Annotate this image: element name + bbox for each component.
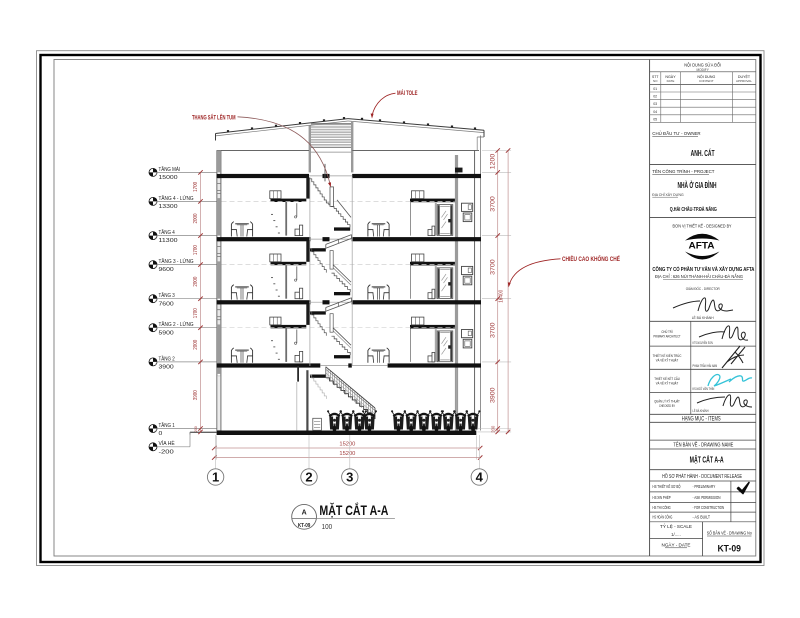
svg-text:TỶ LỆ - SCALE: TỶ LỆ - SCALE [660,522,692,529]
svg-text:TẦNG 3 - LỬNG: TẦNG 3 - LỬNG [159,258,194,265]
svg-text:TẦNG 3: TẦNG 3 [159,292,175,299]
svg-text:TẦNG 2: TẦNG 2 [159,355,175,362]
svg-text:9600: 9600 [159,267,174,273]
svg-text:2000: 2000 [193,213,199,223]
svg-text:ANH. CÁT: ANH. CÁT [691,148,715,158]
svg-text:200: 200 [491,425,496,433]
svg-text:- ASK PERMISSION: - ASK PERMISSION [693,495,721,500]
svg-text:15000: 15000 [159,175,178,181]
svg-text:3: 3 [346,470,353,485]
svg-text:NGÀY - DATE: NGÀY - DATE [662,541,691,547]
svg-text:7600: 7600 [159,301,174,307]
svg-text:4: 4 [476,470,484,485]
svg-text:Q.HẢI CHÂU-TP.ĐÀ NẴNG: Q.HẢI CHÂU-TP.ĐÀ NẴNG [670,206,717,213]
svg-text:0: 0 [159,431,163,437]
svg-text:11300: 11300 [159,238,178,244]
svg-text:VÀ VẼ KỸ THUẬT: VÀ VẼ KỸ THUẬT [656,358,679,363]
svg-text:1700: 1700 [193,182,199,192]
svg-text:15200: 15200 [339,451,355,457]
svg-text:TÊN CÔNG TRÌNH - PROJECT: TÊN CÔNG TRÌNH - PROJECT [652,169,714,174]
svg-text:NO: NO [653,79,658,83]
svg-text:- FOR CONSTRUCTION: - FOR CONSTRUCTION [693,505,725,510]
svg-text:3900: 3900 [193,390,199,400]
svg-text:SỐ BẢN VẼ - DRAWING No: SỐ BẢN VẼ - DRAWING No [707,531,752,536]
svg-text:2000: 2000 [193,340,199,350]
svg-text:CHỦ ĐẦU TƯ - OWNER: CHỦ ĐẦU TƯ - OWNER [652,131,700,136]
svg-text:TẦNG 1: TẦNG 1 [159,422,175,429]
svg-text:VÀ VẼ KỸ THUẬT: VÀ VẼ KỸ THUẬT [656,381,679,386]
svg-text:A: A [302,510,307,517]
svg-text:AFTA: AFTA [689,241,715,251]
svg-text:THIẾT KẾ KẾT CẤU: THIẾT KẾ KẾT CẤU [654,376,680,381]
svg-text:05: 05 [653,117,657,121]
svg-text:GIÁM ĐỐC - DIRECTOR: GIÁM ĐỐC - DIRECTOR [686,286,720,291]
svg-text:100: 100 [322,522,333,531]
svg-text:TẦNG 2 - LỬNG: TẦNG 2 - LỬNG [159,321,194,328]
svg-text:01: 01 [653,87,657,91]
svg-text:- PRELIMINARY: - PRELIMINARY [693,484,716,489]
svg-text:3700: 3700 [490,259,497,275]
svg-text:HS XIN PHÉP: HS XIN PHÉP [653,495,671,500]
svg-text:HS THIẾT KẾ SƠ BỘ: HS THIẾT KẾ SƠ BỘ [653,484,682,489]
svg-text:VỈA HÈ: VỈA HÈ [159,440,176,447]
svg-text:03: 03 [653,102,657,106]
svg-text:ĐƠN VỊ THIẾT KẾ - DESIGNED BY: ĐƠN VỊ THIẾT KẾ - DESIGNED BY [673,223,733,230]
svg-text:1700: 1700 [193,308,199,318]
svg-text:PHAN TRẦN HẢI NAM: PHAN TRẦN HẢI NAM [693,363,718,368]
svg-text:3900: 3900 [490,387,497,403]
svg-text:LÊ BÁ KHÁNH: LÊ BÁ KHÁNH [692,315,714,320]
svg-text:MODIFY: MODIFY [696,68,709,72]
svg-text:02: 02 [653,95,657,99]
svg-text:THIẾT KẾ KIẾN TRÚC: THIẾT KẾ KIẾN TRÚC [653,353,682,358]
svg-text:CÔNG TY CỔ PHẦN TƯ VẤN VÀ XÂY: CÔNG TY CỔ PHẦN TƯ VẤN VÀ XÂY DỰNG AFTA [652,265,754,273]
svg-text:MÁI TOLE: MÁI TOLE [397,90,418,97]
svg-text:TÊN BẢN VẼ - DRAWING NAME: TÊN BẢN VẼ - DRAWING NAME [673,440,733,448]
svg-text:TẦNG MÁI: TẦNG MÁI [159,166,181,173]
svg-text:ĐỊA CHỈ : 626 NÚI THÀNH-HẢI CH: ĐỊA CHỈ : 626 NÚI THÀNH-HẢI CHÂU-ĐÀ NẴNG [655,273,743,279]
svg-text:- AS BUILT: - AS BUILT [693,515,711,520]
svg-text:04: 04 [653,110,657,114]
svg-text:PRIMARY ARCHITECT: PRIMARY ARCHITECT [653,335,681,339]
svg-text:CHỦ TRÌ: CHỦ TRÌ [661,329,672,334]
svg-text:CONTENT: CONTENT [699,79,714,83]
svg-text:HẠNG MỤC - ITEMS: HẠNG MỤC - ITEMS [682,417,721,423]
svg-text:ĐỊA CHỈ XÂY DỰNG: ĐỊA CHỈ XÂY DỰNG [652,192,684,197]
svg-text:2: 2 [305,470,312,485]
svg-text:LÊ BÁ KHÁNH: LÊ BÁ KHÁNH [693,408,709,413]
svg-text:THANG SẮT LÊN TUM: THANG SẮT LÊN TUM [192,114,236,122]
svg-text:QUẢN LÝ KỸ THUẬT: QUẢN LÝ KỸ THUẬT [654,399,680,404]
svg-text:200: 200 [193,426,198,433]
svg-text:-200: -200 [159,449,174,455]
svg-text:16400: 16400 [498,290,504,303]
svg-text:1200: 1200 [490,153,497,169]
svg-text:DATE: DATE [667,79,675,83]
svg-text:KT-09: KT-09 [298,523,311,529]
svg-text:3700: 3700 [490,322,497,338]
svg-text:NHÀ Ở GIA ĐÌNH: NHÀ Ở GIA ĐÌNH [678,181,717,190]
svg-text:HỒ SƠ PHÁT HÀNH - DOCUMENT REL: HỒ SƠ PHÁT HÀNH - DOCUMENT RELEASE [662,473,743,480]
svg-text:HS HOÀN CÔNG: HS HOÀN CÔNG [653,515,673,520]
svg-text:13300: 13300 [159,204,178,210]
svg-text:15200: 15200 [339,441,355,447]
svg-text:MẶT CẮT A-A: MẶT CẮT A-A [690,456,724,465]
svg-text:CHECKED BY: CHECKED BY [659,404,675,408]
svg-text:3700: 3700 [490,196,497,212]
svg-text:KT-09: KT-09 [717,543,741,554]
svg-text:3900: 3900 [159,365,174,371]
svg-text:2000: 2000 [193,276,199,286]
svg-text:5900: 5900 [159,330,174,336]
svg-text:MẶT CẮT A-A: MẶT CẮT A-A [319,501,388,518]
svg-text:TẦNG 4: TẦNG 4 [159,229,175,236]
svg-text:HS THI CÔNG: HS THI CÔNG [653,505,671,510]
svg-text:CHIỀU CAO KHỐNG CHẾ: CHIỀU CAO KHỐNG CHẾ [562,256,620,263]
svg-text:APPROVAL: APPROVAL [736,79,752,83]
svg-text:1: 1 [212,470,219,485]
svg-text:1/.....: 1/..... [671,532,681,537]
svg-text:KS.NGÔ VĂN THÌN: KS.NGÔ VĂN THÌN [693,386,715,391]
svg-text:TẦNG 4 - LỬNG: TẦNG 4 - LỬNG [159,195,194,202]
svg-text:1700: 1700 [193,245,199,255]
svg-text:KTS.NGUYỄN SƠN: KTS.NGUYỄN SƠN [693,340,714,345]
